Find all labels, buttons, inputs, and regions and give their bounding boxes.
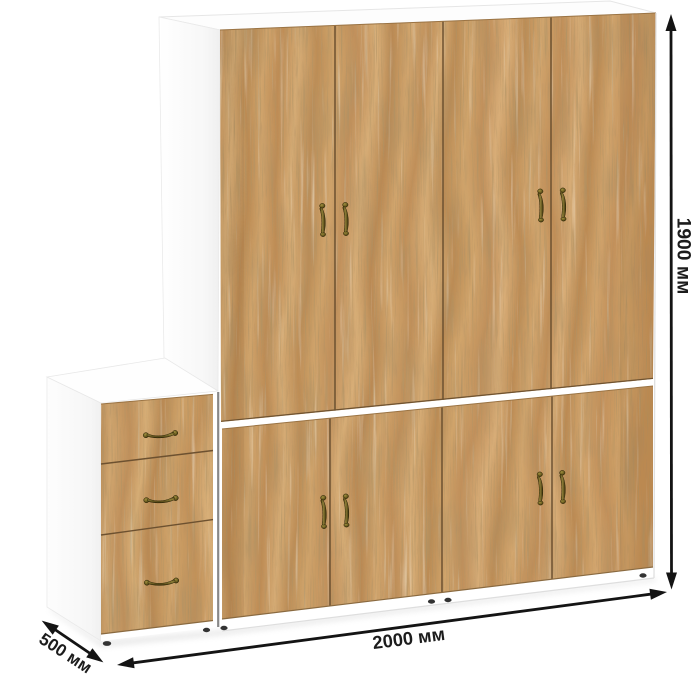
svg-text:1900 мм: 1900 мм (673, 218, 694, 295)
